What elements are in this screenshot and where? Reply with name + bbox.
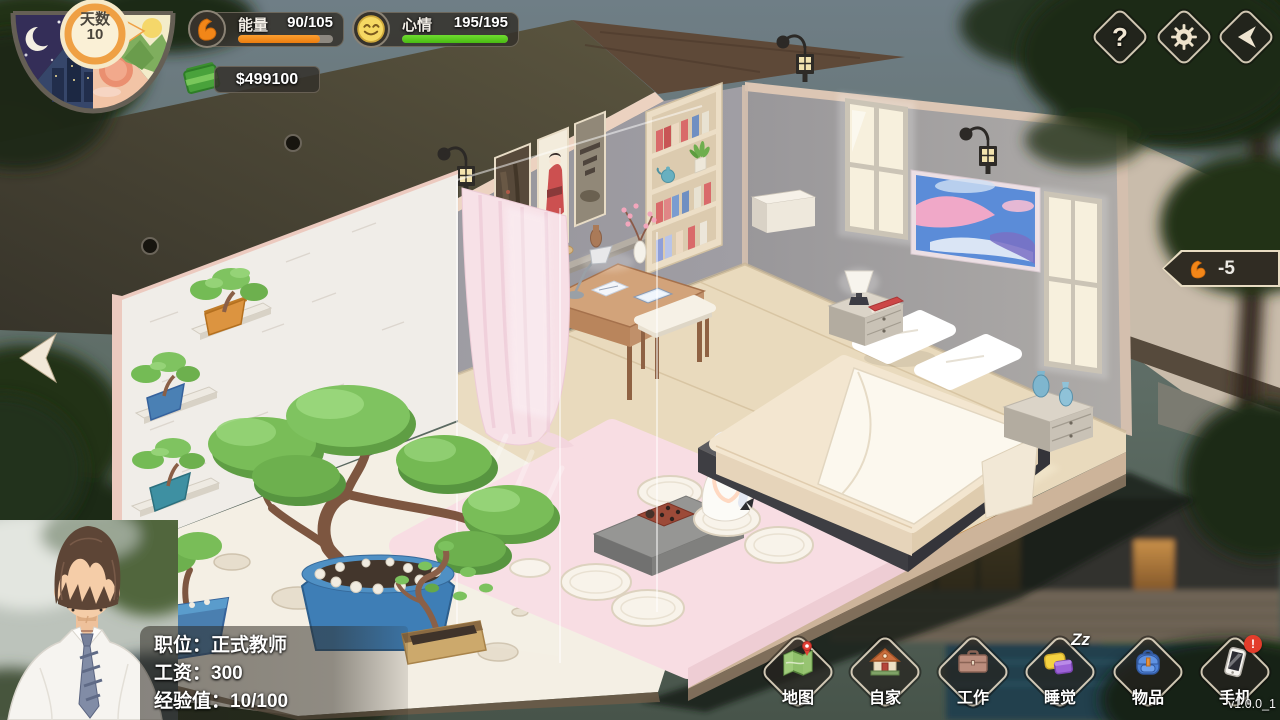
home-icon	[867, 645, 903, 681]
energy-delta-value: -5	[1218, 258, 1235, 280]
smiley-icon	[352, 10, 390, 48]
briefcase-icon	[955, 645, 991, 681]
money-display: $499100	[180, 58, 330, 102]
fuji-painting	[911, 170, 1040, 272]
help-button[interactable]: ?	[1090, 7, 1150, 67]
items-button[interactable]: 物品	[1108, 632, 1188, 712]
muscle-arm-icon	[188, 10, 226, 48]
mood-label: 心情	[402, 14, 432, 35]
sleep-icon	[1042, 645, 1078, 681]
game-screen: 天数 10 能量 90/105 心情 195/195 $499100 ?	[0, 0, 1280, 720]
items-label: 物品	[1108, 684, 1188, 708]
chevron-left-icon	[1216, 7, 1276, 67]
backpack-icon	[1130, 645, 1166, 681]
version-text: v1.0.0_1	[1218, 697, 1276, 711]
map-button[interactable]: 地图	[758, 632, 838, 712]
collapse-panel-button[interactable]	[14, 330, 62, 386]
mood-bar: 心情 195/195	[352, 10, 519, 50]
question-mark-icon: ?	[1090, 7, 1150, 67]
scene	[0, 0, 1280, 720]
salary-row: 工资：300	[154, 660, 408, 688]
energy-label: 能量	[238, 14, 268, 35]
chevron-left-icon	[14, 330, 62, 386]
character-info-panel: 职位：正式教师 工资：300 经验值：10/100	[140, 626, 408, 720]
energy-fill	[238, 35, 320, 43]
day-time-wheel: 天数 10	[4, 0, 182, 120]
work-label: 工作	[933, 684, 1013, 708]
sleep-button[interactable]: Zz 睡觉	[1020, 632, 1100, 712]
roof-light	[285, 135, 301, 151]
settings-button[interactable]	[1154, 7, 1214, 67]
money-value: $499100	[214, 66, 320, 93]
mood-fill	[402, 35, 508, 43]
mood-value: 195/195	[454, 14, 508, 31]
wall-box-shelf	[752, 190, 815, 233]
roof-light	[142, 238, 158, 254]
map-label: 地图	[758, 684, 838, 708]
exp-row: 经验值：10/100	[154, 688, 408, 716]
energy-change-banner: -5	[1162, 250, 1280, 287]
energy-bar: 能量 90/105	[188, 10, 344, 50]
map-icon	[780, 645, 816, 681]
muscle-arm-icon	[1186, 257, 1210, 281]
zz-icon: Zz	[1071, 630, 1090, 650]
home-label: 自家	[845, 684, 925, 708]
day-value: 10	[68, 26, 122, 43]
hide-ui-button[interactable]	[1216, 7, 1276, 67]
window	[838, 92, 915, 246]
sleep-label: 睡觉	[1020, 684, 1100, 708]
window	[1038, 186, 1108, 380]
home-button[interactable]: 自家	[845, 632, 925, 712]
notification-badge: !	[1244, 635, 1262, 653]
wall-corner-trim	[742, 85, 748, 265]
job-row: 职位：正式教师	[154, 632, 408, 660]
work-button[interactable]: 工作	[933, 632, 1013, 712]
energy-value: 90/105	[287, 14, 333, 31]
gear-icon	[1154, 7, 1214, 67]
